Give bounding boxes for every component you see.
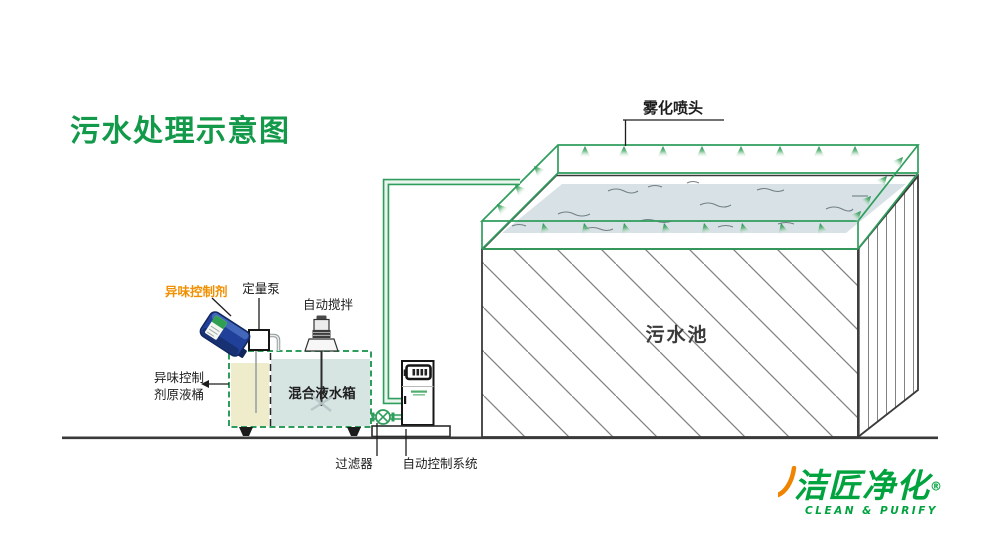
registered-mark: ® <box>930 480 942 494</box>
stirrer-motor-body <box>314 320 329 331</box>
brand-tagline: CLEAN & PURIFY <box>794 505 942 517</box>
callout-agent-barrel: 异味控制 剂原液桶 <box>154 370 229 402</box>
metering-pump <box>249 330 279 351</box>
sewage-treatment-schematic: 污水处理示意图 污水池 <box>0 0 1000 533</box>
agent-compartment <box>231 363 269 426</box>
brand-name: 洁匠净化 <box>794 466 930 505</box>
pump-body <box>249 330 269 350</box>
metering-pump-label: 定量泵 <box>242 281 280 296</box>
spray-cone-icon <box>658 146 669 157</box>
spray-cone-icon <box>775 146 786 157</box>
cabinet-brand-sticker <box>411 391 427 393</box>
filter-label: 过滤器 <box>335 456 373 471</box>
auto-control-label: 自动控制系统 <box>402 456 477 471</box>
spray-label-leader <box>623 120 724 146</box>
spray-nozzles-label: 雾化喷头 <box>642 99 703 117</box>
callout-odor-agent: 异味控制剂 <box>165 284 231 316</box>
spray-cone-icon <box>850 146 861 157</box>
callout-spray-nozzles: 雾化喷头 <box>623 99 724 146</box>
tank-leg <box>239 427 253 436</box>
logo-swoosh-icon <box>778 466 798 498</box>
spray-cone-icon <box>736 146 747 157</box>
agent-barrel-label-line1: 异味控制 <box>154 370 204 385</box>
spray-cone-icon <box>697 146 708 157</box>
tank-leg <box>347 427 361 436</box>
sewage-pool-label: 污水池 <box>645 323 708 346</box>
agent-barrel-label-line2: 剂原液桶 <box>154 387 204 402</box>
mixing-tank: 混合液水箱 <box>229 350 371 436</box>
spray-cone-icon <box>619 146 630 157</box>
auto-stirrer-label: 自动搅拌 <box>303 297 354 312</box>
stirrer-motor-ribs <box>313 330 331 338</box>
brand-logo: 洁匠净化® CLEAN & PURIFY <box>794 469 942 517</box>
stirrer-mount <box>305 339 338 351</box>
diagram-canvas: 污水池 <box>0 0 1000 533</box>
spray-cone-icon <box>814 146 825 157</box>
callout-auto-stirrer: 自动搅拌 <box>303 297 354 312</box>
odor-agent-label: 异味控制剂 <box>165 284 228 299</box>
brand-logo-row: 洁匠净化® <box>794 469 942 502</box>
callout-metering-pump: 定量泵 <box>242 281 280 329</box>
cabinet-brand-sticker <box>413 394 425 396</box>
cabinet-base-slab <box>372 426 450 437</box>
spray-cone-icon <box>580 146 591 157</box>
cabinet-handle <box>404 396 406 404</box>
